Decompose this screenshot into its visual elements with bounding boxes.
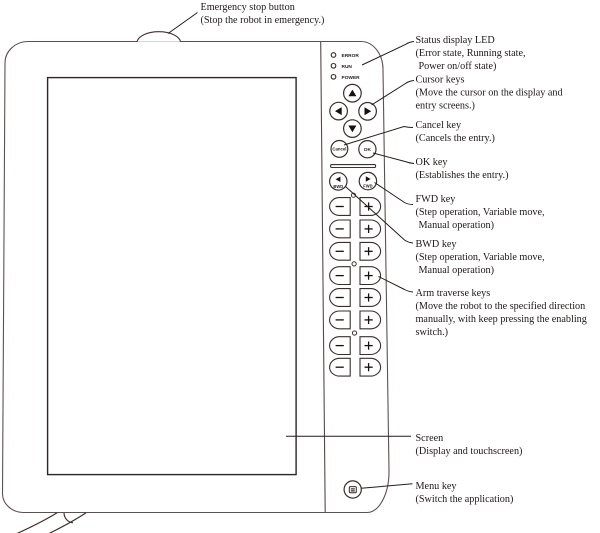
svg-text:Cursor keys: Cursor keys [416,74,465,85]
svg-text:FWD: FWD [363,184,372,189]
svg-text:POWER: POWER [342,75,361,81]
svg-text:(Establishes the entry.): (Establishes the entry.) [416,170,509,181]
svg-text:ERROR: ERROR [342,53,360,59]
svg-text:Cancel: Cancel [332,147,346,152]
svg-text:FWD key: FWD key [416,194,457,205]
svg-text:(Switch the application): (Switch the application) [416,494,514,505]
svg-text:OK: OK [364,147,372,153]
svg-text:(Step operation, Variable move: (Step operation, Variable move, [416,252,545,263]
svg-text:Menu key: Menu key [416,481,458,492]
svg-text:(Stop the robot in emergency.): (Stop the robot in emergency.) [201,15,325,26]
svg-text:(Move the cursor on the displa: (Move the cursor on the display and [416,87,563,98]
svg-text:(Display and touchscreen): (Display and touchscreen) [416,446,523,457]
svg-text:Screen: Screen [416,433,444,444]
svg-text:Status display LED: Status display LED [416,35,495,46]
svg-text:(Move the robot to the specifi: (Move the robot to the specified directi… [416,301,586,312]
svg-text:entry screens.): entry screens.) [416,100,475,111]
svg-text:Cancel key: Cancel key [416,120,462,131]
svg-text:Manual operation): Manual operation) [419,265,495,276]
svg-text:RUN: RUN [342,64,353,70]
svg-text:OK key: OK key [416,157,449,168]
svg-text:(Error state, Running state,: (Error state, Running state, [416,48,526,59]
svg-text:Arm traverse keys: Arm traverse keys [416,288,491,299]
svg-text:Emergency stop button: Emergency stop button [201,2,295,13]
svg-text:BWD: BWD [333,184,343,189]
svg-text:(Step operation, Variable move: (Step operation, Variable move, [416,207,545,218]
svg-text:BWD key: BWD key [416,239,458,250]
svg-text:Power on/off state): Power on/off state) [419,61,497,72]
svg-text:switch.): switch.) [416,327,449,338]
svg-text:(Cancels the entry.): (Cancels the entry.) [416,133,495,144]
svg-text:manually, with keep pressing t: manually, with keep pressing the enablin… [416,314,587,325]
svg-text:Manual operation): Manual operation) [419,220,495,231]
